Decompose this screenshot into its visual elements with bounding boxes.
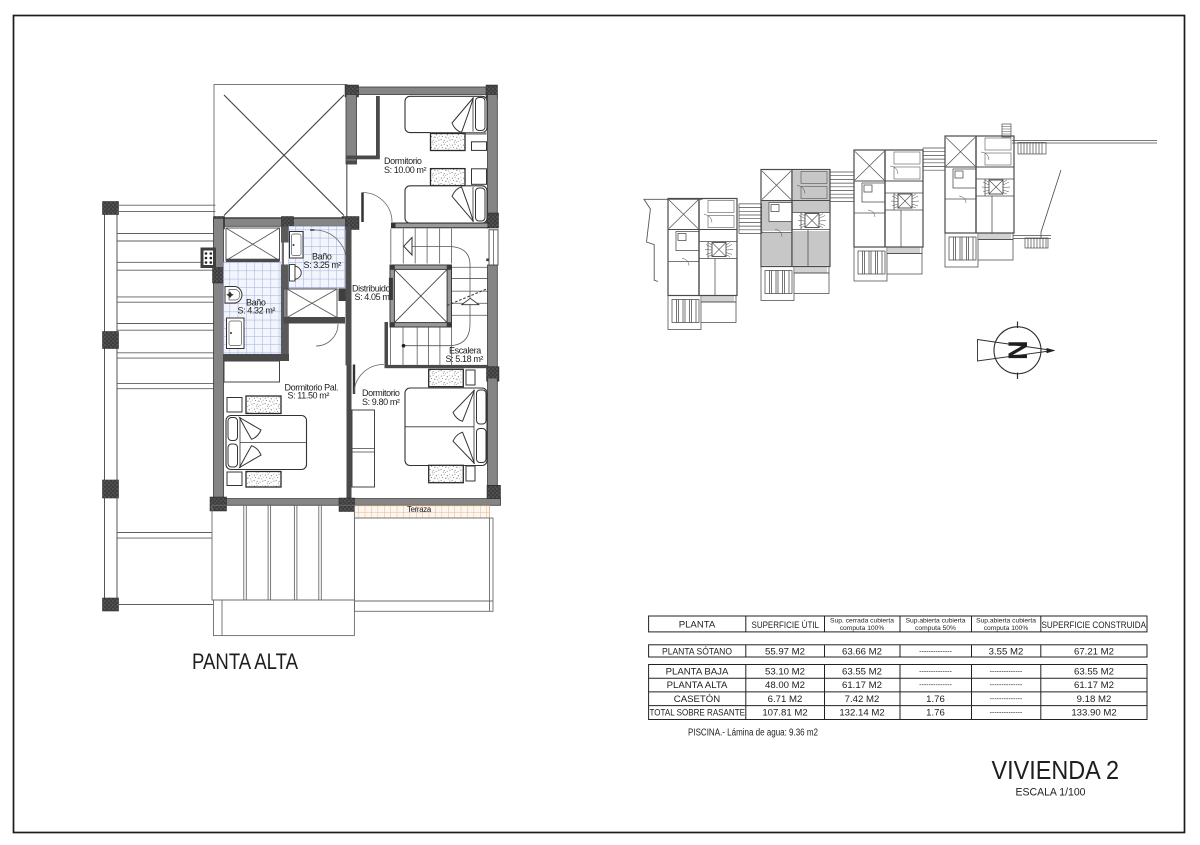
svg-text:--------------: -------------- (990, 710, 1023, 717)
svg-text:computa 50%: computa 50% (915, 625, 956, 632)
svg-text:ESCALA 1/100: ESCALA 1/100 (1016, 787, 1086, 799)
svg-text:--------------: -------------- (990, 696, 1023, 703)
svg-text:--------------: -------------- (990, 669, 1023, 676)
svg-text:132.14 M2: 132.14 M2 (839, 708, 884, 719)
svg-text:PLANTA ALTA: PLANTA ALTA (667, 680, 728, 691)
svg-text:CASETÓN: CASETÓN (674, 694, 720, 705)
svg-text:S: 10.00 m²: S: 10.00 m² (384, 165, 427, 175)
svg-text:67.21 M2: 67.21 M2 (1074, 647, 1114, 658)
svg-text:Terraza: Terraza (407, 505, 432, 514)
svg-text:PANTA ALTA: PANTA ALTA (192, 649, 298, 674)
svg-text:48.00 M2: 48.00 M2 (765, 680, 805, 691)
svg-text:3.55 M2: 3.55 M2 (989, 647, 1024, 658)
svg-text:--------------: -------------- (919, 682, 952, 689)
svg-text:Sup. cerrada cubierta: Sup. cerrada cubierta (830, 618, 894, 625)
svg-text:S: 4.32 m²: S: 4.32 m² (238, 306, 276, 316)
svg-text:computa 100%: computa 100% (840, 625, 885, 632)
svg-text:Sup.abierta cubierta: Sup.abierta cubierta (976, 618, 1036, 625)
svg-text:55.97 M2: 55.97 M2 (765, 647, 805, 658)
svg-text:N: N (1003, 341, 1033, 361)
svg-text:61.17 M2: 61.17 M2 (1074, 680, 1114, 691)
svg-text:computa 100%: computa 100% (984, 625, 1029, 632)
svg-text:TOTAL SOBRE RASANTE: TOTAL SOBRE RASANTE (650, 708, 746, 719)
svg-text:S: 11.50 m²: S: 11.50 m² (288, 391, 330, 401)
svg-text:61.17 M2: 61.17 M2 (842, 680, 882, 691)
svg-text:PLANTA SÓTANO: PLANTA SÓTANO (662, 647, 732, 658)
svg-text:S: 9.80 m²: S: 9.80 m² (362, 397, 400, 407)
svg-text:PISCINA.- Lámina de agua: 9.36: PISCINA.- Lámina de agua: 9.36 m2 (688, 728, 818, 739)
svg-text:Sup.abierta cubierta: Sup.abierta cubierta (906, 618, 966, 625)
svg-text:S: 4.05 m²: S: 4.05 m² (355, 292, 393, 302)
svg-text:--------------: -------------- (990, 682, 1023, 689)
svg-text:133.90 M2: 133.90 M2 (1071, 708, 1116, 719)
svg-text:53.10 M2: 53.10 M2 (765, 667, 805, 678)
svg-text:--------------: -------------- (919, 669, 952, 676)
svg-text:PLANTA: PLANTA (679, 620, 716, 631)
svg-text:S: 3.25 m²: S: 3.25 m² (304, 260, 342, 270)
svg-text:--------------: -------------- (919, 649, 952, 656)
svg-text:63.55 M2: 63.55 M2 (842, 667, 882, 678)
svg-text:63.55 M2: 63.55 M2 (1074, 667, 1114, 678)
svg-text:7.42 M2: 7.42 M2 (845, 694, 880, 705)
svg-text:107.81 M2: 107.81 M2 (762, 708, 807, 719)
svg-text:S: 5.18 m²: S: 5.18 m² (446, 354, 484, 364)
svg-text:6.71 M2: 6.71 M2 (768, 694, 803, 705)
svg-text:PLANTA BAJA: PLANTA BAJA (666, 667, 729, 678)
svg-text:SUPERFICIE ÚTIL: SUPERFICIE ÚTIL (752, 620, 820, 631)
svg-text:VIVIENDA 2: VIVIENDA 2 (992, 755, 1120, 785)
svg-text:1.76: 1.76 (926, 708, 945, 719)
svg-text:1.76: 1.76 (926, 694, 945, 705)
svg-text:SUPERFICIE CONSTRUIDA: SUPERFICIE CONSTRUIDA (1042, 620, 1147, 631)
svg-text:9.18 M2: 9.18 M2 (1077, 694, 1112, 705)
svg-text:63.66 M2: 63.66 M2 (842, 647, 882, 658)
